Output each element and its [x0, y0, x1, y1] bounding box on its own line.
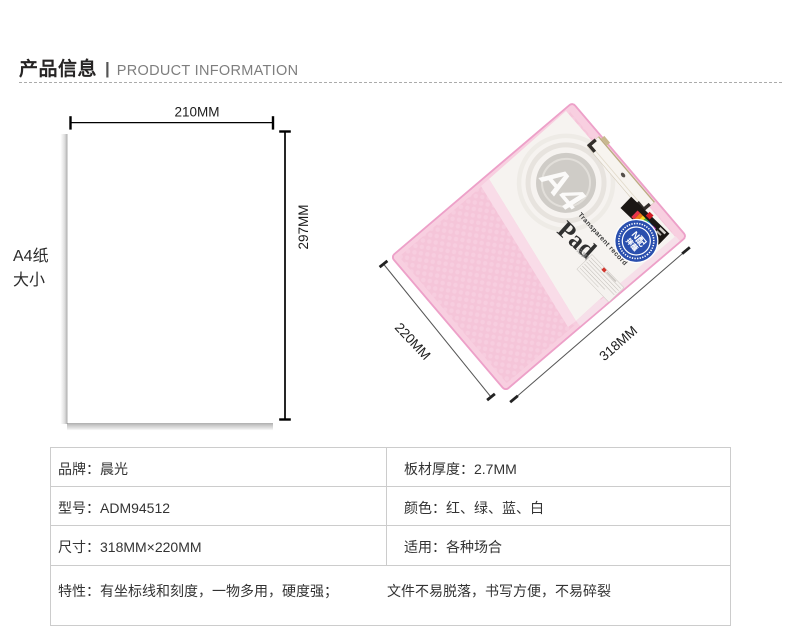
svg-text:220MM: 220MM [392, 320, 434, 363]
svg-text:318MM: 318MM [596, 323, 640, 364]
svg-text:210MM: 210MM [174, 105, 219, 120]
svg-text:297MM: 297MM [296, 204, 311, 249]
